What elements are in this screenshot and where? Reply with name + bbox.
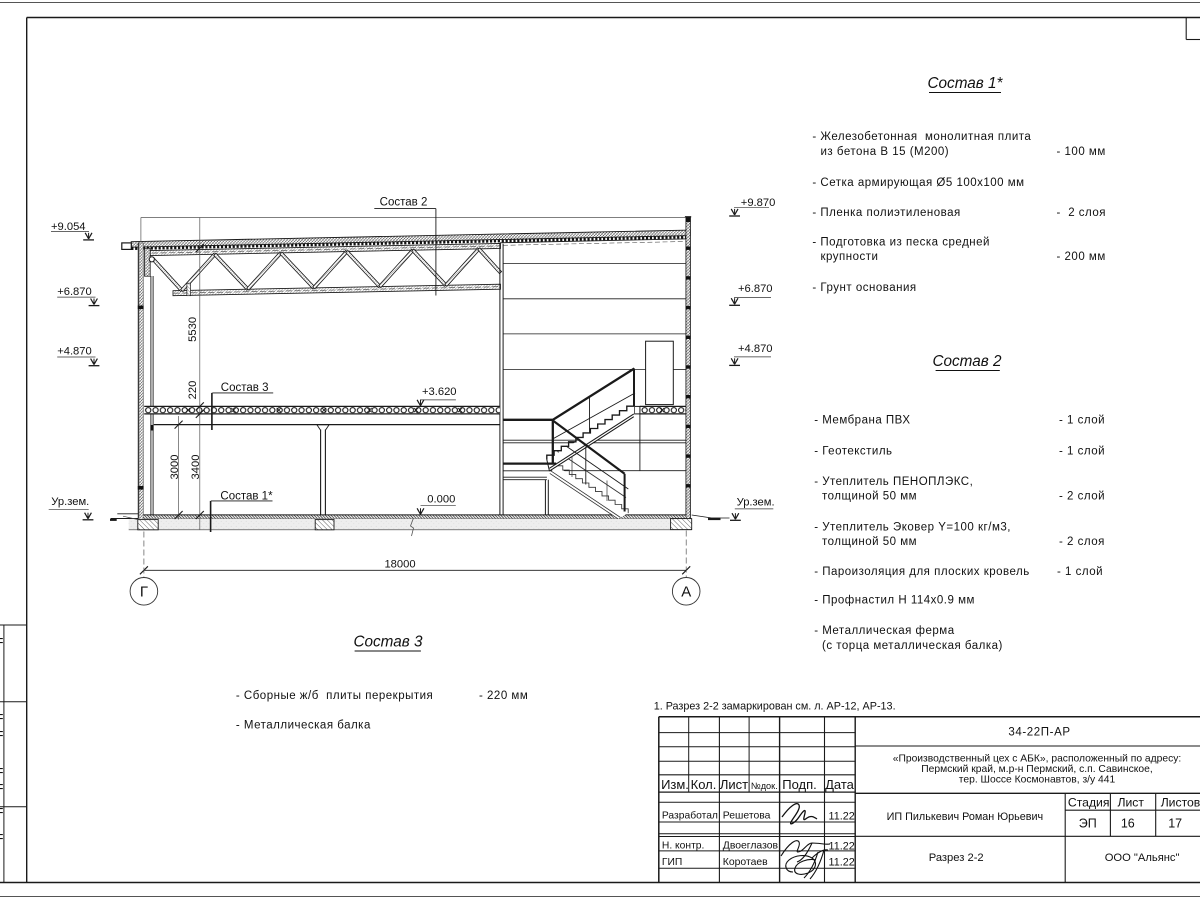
svg-text:ООО "Альянс": ООО "Альянс" bbox=[1105, 852, 1180, 864]
svg-text:- Металлическая ферма: - Металлическая ферма bbox=[814, 625, 955, 637]
svg-text:11.22: 11.22 bbox=[829, 811, 855, 823]
svg-text:Ур.зем.: Ур.зем. bbox=[737, 496, 775, 508]
svg-text:3400: 3400 bbox=[190, 455, 202, 480]
svg-text:16: 16 bbox=[1121, 816, 1135, 830]
svg-text:220: 220 bbox=[187, 381, 199, 400]
svg-text:11.22: 11.22 bbox=[829, 856, 855, 868]
svg-text:- Профнастил Н 114х0.9 мм: - Профнастил Н 114х0.9 мм bbox=[814, 594, 975, 606]
svg-text:1. Разрез 2-2 замаркирован см.: 1. Разрез 2-2 замаркирован см. л. АР-12,… bbox=[654, 701, 896, 713]
svg-text:- Мембрана ПВХ: - Мембрана ПВХ bbox=[814, 414, 910, 426]
svg-text:- 100 мм: - 100 мм bbox=[1057, 146, 1106, 158]
svg-text:- Утеплитель Эковер Y=100 кг/м: - Утеплитель Эковер Y=100 кг/м3, bbox=[814, 521, 1011, 533]
svg-text:- Утеплитель ПЕНОПЛЭКС,: - Утеплитель ПЕНОПЛЭКС, bbox=[814, 476, 973, 488]
svg-text:тер. Шоссе Космонавтов, з/у 44: тер. Шоссе Космонавтов, з/у 441 bbox=[959, 774, 1116, 785]
svg-text:11.22: 11.22 bbox=[829, 841, 855, 853]
svg-text:- Подготовка из песка средней: - Подготовка из песка средней bbox=[812, 236, 990, 248]
svg-text:- Железобетонная монолитная п: - Железобетонная монолитная плита bbox=[812, 131, 1031, 143]
svg-text:«Производственный цех с АБК»,: «Производственный цех с АБК», расположен… bbox=[893, 754, 1182, 765]
svg-text:+4.870: +4.870 bbox=[738, 343, 773, 355]
svg-text:ИП Пилькевич Роман Юрьевич: ИП Пилькевич Роман Юрьевич bbox=[887, 811, 1044, 823]
svg-text:+3.620: +3.620 bbox=[422, 386, 457, 398]
svg-text:- 2 слоя: - 2 слоя bbox=[1059, 536, 1105, 548]
svg-text:- 2 слоя: - 2 слоя bbox=[1057, 207, 1107, 219]
svg-text:- Пленка полиэтиленовая: - Пленка полиэтиленовая bbox=[812, 207, 960, 219]
svg-text:толщиной 50 мм: толщиной 50 мм bbox=[822, 536, 917, 548]
svg-text:- 1 слой: - 1 слой bbox=[1059, 446, 1105, 458]
svg-text:0.000: 0.000 bbox=[427, 494, 455, 506]
svg-text:Состав 3: Состав 3 bbox=[221, 382, 269, 394]
svg-text:18000: 18000 bbox=[384, 558, 415, 570]
svg-text:Лист: Лист bbox=[1117, 795, 1144, 809]
svg-text:толщиной 50 мм: толщиной 50 мм bbox=[822, 490, 917, 502]
svg-text:- Сетка армирующая Ø5 100х100: - Сетка армирующая Ø5 100х100 мм bbox=[812, 177, 1024, 189]
svg-text:Коротаев: Коротаев bbox=[723, 857, 768, 868]
svg-text:34-22П-АР: 34-22П-АР bbox=[1008, 727, 1070, 739]
svg-text:3000: 3000 bbox=[169, 455, 181, 480]
svg-text:Лист: Лист bbox=[720, 777, 748, 792]
svg-text:+6.870: +6.870 bbox=[57, 286, 92, 298]
svg-text:№док.: №док. bbox=[751, 781, 778, 791]
svg-text:Н. контр.: Н. контр. bbox=[662, 840, 705, 851]
svg-text:ГИП: ГИП bbox=[662, 857, 682, 868]
svg-text:Дата: Дата bbox=[825, 777, 855, 792]
svg-text:из бетона В 15 (М200): из бетона В 15 (М200) bbox=[821, 146, 950, 158]
svg-text:Изм.: Изм. bbox=[661, 777, 689, 792]
svg-text:Листов: Листов bbox=[1161, 795, 1200, 809]
svg-text:(с торца металлическая балка): (с торца металлическая балка) bbox=[822, 640, 1003, 652]
svg-text:Ур.зем.: Ур.зем. bbox=[51, 496, 89, 508]
svg-text:- 1 слой: - 1 слой bbox=[1059, 414, 1105, 426]
svg-text:Состав 2: Состав 2 bbox=[932, 353, 1002, 370]
svg-text:Двоеглазов: Двоеглазов bbox=[723, 840, 779, 851]
svg-text:+4.870: +4.870 bbox=[57, 346, 92, 358]
svg-text:- Пароизоляция для плоских кро: - Пароизоляция для плоских кровель bbox=[814, 566, 1030, 578]
svg-text:- 200 мм: - 200 мм bbox=[1057, 251, 1106, 263]
svg-text:Состав 2: Состав 2 bbox=[380, 196, 428, 208]
svg-text:Г: Г bbox=[140, 583, 148, 600]
svg-text:+6.870: +6.870 bbox=[738, 283, 773, 295]
svg-text:Подп.: Подп. bbox=[782, 777, 817, 792]
svg-text:Состав 3: Состав 3 bbox=[353, 634, 423, 651]
svg-text:- Грунт основания: - Грунт основания bbox=[812, 282, 916, 294]
svg-text:Стадия: Стадия bbox=[1068, 795, 1110, 809]
svg-text:17: 17 bbox=[1168, 816, 1182, 830]
svg-text:- 2 слой: - 2 слой bbox=[1059, 490, 1105, 502]
svg-text:- Сборные ж/б плиты перекрыти: - Сборные ж/б плиты перекрытия bbox=[236, 690, 433, 702]
svg-text:- 1 слой: - 1 слой bbox=[1057, 566, 1103, 578]
svg-text:Решетова: Решетова bbox=[723, 811, 771, 822]
svg-text:- 220 мм: - 220 мм bbox=[479, 690, 528, 702]
svg-text:5530: 5530 bbox=[187, 317, 199, 342]
svg-text:- Металлическая балка: - Металлическая балка bbox=[236, 720, 371, 732]
svg-text:ЭП: ЭП bbox=[1079, 816, 1097, 830]
svg-text:+9.054: +9.054 bbox=[51, 221, 86, 233]
svg-text:- Геотекстиль: - Геотекстиль bbox=[814, 446, 892, 458]
svg-text:Разработал: Разработал bbox=[662, 810, 718, 822]
svg-text:Состав 1*: Состав 1* bbox=[928, 75, 1004, 92]
svg-text:Разрез 2-2: Разрез 2-2 bbox=[929, 852, 984, 864]
svg-text:А: А bbox=[681, 584, 691, 601]
svg-text:Кол.: Кол. bbox=[691, 777, 717, 792]
svg-text:крупности: крупности bbox=[821, 251, 879, 263]
